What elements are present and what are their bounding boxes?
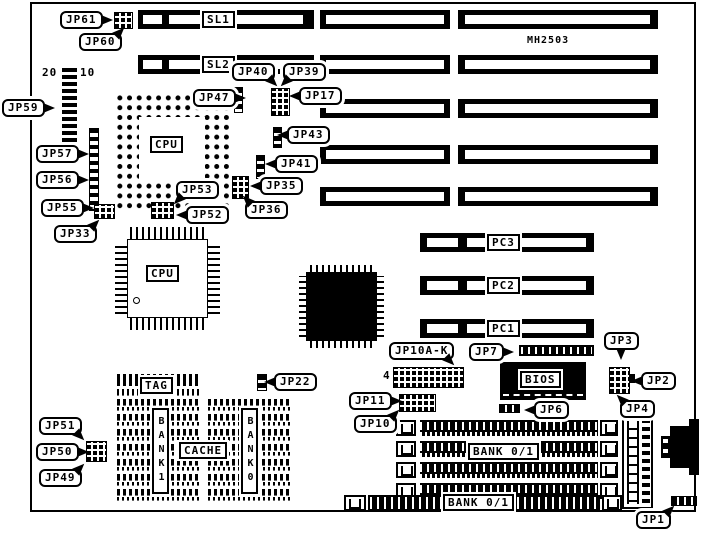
jp1-jumper [671,496,697,506]
simm-latch [396,462,416,478]
board-model-text: MH2503 [527,35,569,46]
keyboard-connector [670,426,691,468]
callout-jp52: JP52 [186,206,229,224]
simm-latch [600,462,618,478]
slot-label-pc1: PC1 [487,320,520,337]
callout-jp51: JP51 [39,417,82,435]
callout-jp57: JP57 [36,145,79,163]
cpu-qfp-label: CPU [146,265,179,282]
cpu-pga-label: CPU [150,136,183,153]
jp53-jp52-jumper [151,202,174,219]
callout-jp10ak: JP10A-K [389,342,454,360]
chipset-pins-right [377,276,384,337]
callout-jp2: JP2 [641,372,676,390]
jp6-jumper [499,404,520,413]
jp57-jp56-header [89,128,99,211]
callout-jp1: JP1 [636,511,671,529]
cache-label: CACHE [179,442,227,459]
simm-latch [344,495,366,511]
simm-latch [396,420,416,436]
isa-slot-5-mid [320,187,450,206]
isa-slot-3-right [458,99,658,118]
isa-slot-sl2-mid [320,55,450,74]
callout-jp33: JP33 [54,225,97,243]
simm-bank01-label: BANK 0/1 [468,443,539,460]
callout-jp6: JP6 [534,401,569,419]
callout-jp40: JP40 [232,63,275,81]
callout-jp4: JP4 [620,400,655,418]
cpu-qfp-pins-right [208,243,220,314]
pin20-text: 20 [42,66,57,79]
simm-bank01-label-2: BANK 0/1 [443,494,514,511]
callout-jp22: JP22 [274,373,317,391]
slot-label-pc3: PC3 [487,234,520,251]
callout-jp36: JP36 [245,201,288,219]
simm-socket [420,462,598,478]
callout-jp11: JP11 [349,392,392,410]
callout-jp41: JP41 [275,155,318,173]
pin4-text: 4 [383,369,391,382]
tag-label: TAG [140,377,173,394]
slot-label-sl2: SL2 [202,56,235,73]
jp3-jp2-jumper [609,367,630,394]
callout-jp50: JP50 [36,443,79,461]
chipset-pins-top [310,265,373,272]
chipset-pins-left [299,276,306,337]
chipset-body [306,272,377,341]
cpu-qfp-pin1-mark [133,297,140,304]
slot-label-sl1: SL1 [202,11,235,28]
bank0-label: BANK0 [241,408,258,494]
callout-jp43: JP43 [287,126,330,144]
jp49-jp50-jp51-jumper [86,441,107,462]
simm-latch [602,495,622,511]
callout-jp49: JP49 [39,469,82,487]
motherboard-diagram: SL1 SL2 MH2503 PC3 PC2 PC1 CPU CPU 20 10 [0,0,701,537]
callout-jp55: JP55 [41,199,84,217]
callout-jp59: JP59 [2,99,45,117]
simm-latch [396,441,416,457]
isa-slot-4-right [458,145,658,164]
cpu-qfp-pins-bottom [130,318,206,330]
callout-jp35: JP35 [260,177,303,195]
callout-jp61: JP61 [60,11,103,29]
simm-latch [600,441,618,457]
jp4-power-connector [622,414,653,509]
callout-jp56: JP56 [36,171,79,189]
jp41-jumper [256,155,265,179]
callout-jp39: JP39 [283,63,326,81]
isa-slot-5-right [458,187,658,206]
cpu-qfp-pins-top [130,227,206,239]
isa-slot-sl1-mid [320,10,450,29]
chipset-pins-bottom [310,341,373,348]
callout-jp3: JP3 [604,332,639,350]
jp10ak-jumper-block [393,367,464,388]
callout-jp10: JP10 [354,415,397,433]
keyboard-connector-tab [661,437,670,445]
pin10-text: 10 [80,66,95,79]
isa-slot-4-mid [320,145,450,164]
jp40-jp39-jp17-jumper [271,88,290,116]
callout-jp7: JP7 [469,343,504,361]
cpu-qfp-pins-left [115,243,127,314]
simm-latch [600,420,618,436]
jp7-header [519,345,594,356]
callout-jp17: JP17 [299,87,342,105]
isa-slot-sl2-right [458,55,658,74]
jp11-jp10-jumper [399,394,436,412]
bank1-label: BANK1 [152,408,169,494]
slot-label-pc2: PC2 [487,277,520,294]
bios-label: BIOS [520,371,561,388]
keyboard-connector-tab [661,447,670,455]
simm-socket [420,420,598,436]
callout-jp47: JP47 [193,89,236,107]
callout-jp53: JP53 [176,181,219,199]
callout-jp60: JP60 [79,33,122,51]
isa-slot-sl1-right [458,10,658,29]
